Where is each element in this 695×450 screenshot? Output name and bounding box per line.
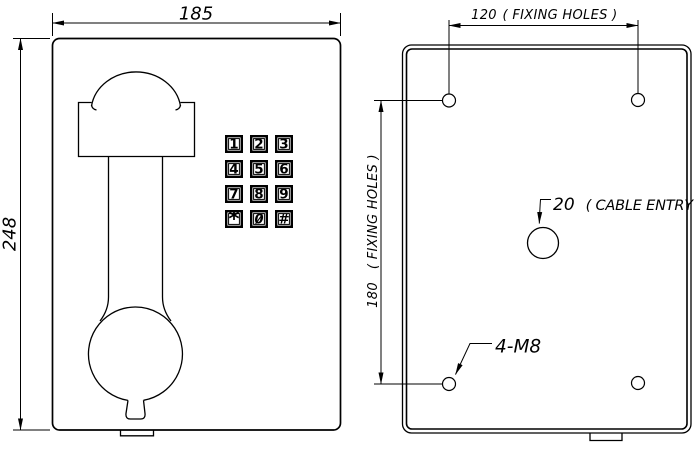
dimension-text-fixing-height: 180( FIXING HOLES ) [366,154,381,308]
leader-line [539,200,551,224]
key-label: 1 [229,137,238,153]
keypad-key-8: 8 [251,186,267,203]
bolt-spec-callout: 4-M8 [456,337,542,375]
key-label: 6 [279,162,288,178]
rear-view: 120 ( FIXING HOLES ) 180( FIXING HOLES )… [366,8,695,441]
dimension-fixing-height: 180( FIXING HOLES ) [366,101,443,385]
key-label: 9 [279,187,288,203]
keypad-key-star: * [226,207,242,231]
front-bottom-tab [121,430,154,436]
key-label: 2 [254,137,263,153]
key-label: * [229,207,240,231]
dimension-text-height: 248 [0,217,21,251]
key-label: 5 [254,162,263,178]
cable-entry-label: ( CABLE ENTRY ) [586,198,695,214]
key-label: 8 [254,187,263,203]
drawing-canvas: 1 2 3 4 5 [0,0,695,450]
keypad-key-0: 0 [251,211,267,227]
keypad-key-4: 4 [226,161,242,178]
key-label: 3 [279,137,288,153]
keypad-key-hash: # [276,211,292,227]
fixing-hole-bottom-right [632,377,645,390]
key-label: # [278,212,289,228]
keypad-key-3: 3 [276,136,292,153]
keypad-key-2: 2 [251,136,267,153]
key-label: 4 [229,162,238,178]
leader-line [456,344,493,375]
fixing-hole-top-left [443,94,456,107]
rear-bottom-tab [590,433,622,441]
keypad-key-9: 9 [276,186,292,203]
key-label: 7 [229,187,238,203]
keypad-key-5: 5 [251,161,267,178]
telephone-dimension-drawing: 1 2 3 4 5 [0,0,695,450]
dimension-text-fixing-width: 120 [471,8,497,23]
keypad-key-1: 1 [226,136,242,153]
bolt-spec-text: 4-M8 [495,337,541,358]
front-enclosure-outline [53,39,341,431]
dimension-fixing-width: 120 ( FIXING HOLES ) [449,8,638,94]
front-view: 1 2 3 4 5 [0,4,341,436]
cable-entry-text: 20( CABLE ENTRY ) [553,195,695,215]
fixing-hole-bottom-left [443,378,456,391]
cable-entry-callout: 20( CABLE ENTRY ) [528,195,695,259]
keypad-key-7: 7 [226,186,242,203]
fixing-height-label: ( FIXING HOLES ) [366,154,381,269]
keypad-key-6: 6 [276,161,292,178]
fixing-hole-top-right [632,94,645,107]
cable-entry-value: 20 [553,195,575,215]
dimension-label-fixing-width: ( FIXING HOLES ) [503,8,618,23]
dimension-text-width: 185 [179,4,213,25]
dimension-height: 248 [0,39,50,431]
cable-entry-hole [528,228,559,259]
fixing-height-value: 180 [366,282,381,308]
dimension-width: 185 [53,4,341,37]
